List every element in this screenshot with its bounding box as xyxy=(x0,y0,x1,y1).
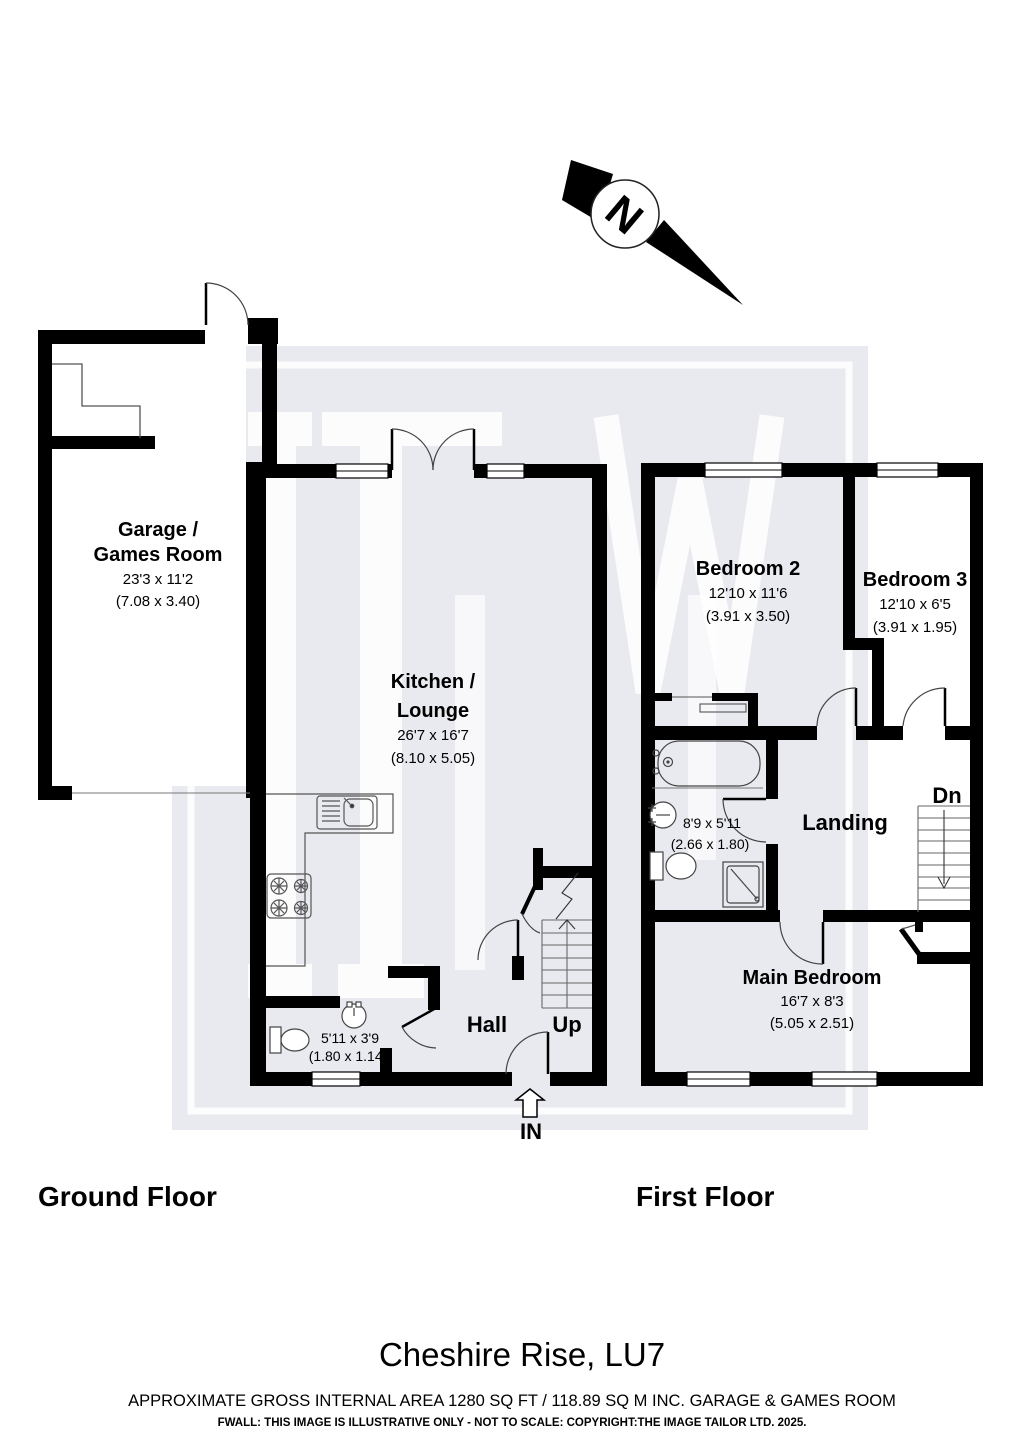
kitchen-label: Kitchen / xyxy=(391,671,476,693)
bedroom2-label: Bedroom 2 xyxy=(696,558,800,580)
window xyxy=(336,464,388,478)
main-bedroom-label: Main Bedroom xyxy=(743,967,882,989)
basin-icon xyxy=(648,802,676,828)
toilet-icon xyxy=(270,1027,309,1053)
north-arrow-icon: N xyxy=(562,160,743,305)
bathroom-dims-imperial: 8'9 x 5'11 xyxy=(683,815,741,831)
garage-dims-imperial: 23'3 x 11'2 xyxy=(123,571,194,588)
garage-label: Garage / xyxy=(118,519,198,541)
disclaimer: FWALL: THIS IMAGE IS ILLUSTRATIVE ONLY -… xyxy=(218,1417,807,1429)
area-summary: APPROXIMATE GROSS INTERNAL AREA 1280 SQ … xyxy=(128,1392,896,1410)
bedroom3-dims-metric: (3.91 x 1.95) xyxy=(873,619,957,636)
main-bedroom-dims-imperial: 16'7 x 8'3 xyxy=(780,993,843,1010)
kitchen-dims-metric: (8.10 x 5.05) xyxy=(391,750,475,767)
first-floor-title: First Floor xyxy=(636,1181,775,1212)
bedroom2-dims-metric: (3.91 x 3.50) xyxy=(706,608,790,625)
landing-label: Landing xyxy=(802,810,888,835)
in-label: IN xyxy=(520,1119,542,1144)
floorplan-canvas: N xyxy=(0,0,1024,1447)
kitchen-label-2: Lounge xyxy=(397,700,469,722)
stairs-down xyxy=(918,806,970,912)
window xyxy=(705,463,782,477)
hall-label: Hall xyxy=(467,1012,507,1037)
door-arc xyxy=(206,283,248,325)
window xyxy=(487,464,524,478)
dn-label: Dn xyxy=(932,783,961,808)
window xyxy=(877,463,938,477)
window xyxy=(312,1072,360,1086)
ground-floor-title: Ground Floor xyxy=(38,1181,217,1212)
garage-label-2: Games Room xyxy=(94,544,223,566)
window xyxy=(687,1072,750,1086)
bedroom2-dims-imperial: 12'10 x 11'6 xyxy=(709,585,788,602)
up-label: Up xyxy=(552,1012,581,1037)
floorplan-page: N xyxy=(0,0,1024,1447)
garage-dims-metric: (7.08 x 3.40) xyxy=(116,593,200,610)
kitchen-dims-imperial: 26'7 x 16'7 xyxy=(397,727,469,744)
window xyxy=(812,1072,877,1086)
address-title: Cheshire Rise, LU7 xyxy=(379,1336,665,1373)
bedroom3-dims-imperial: 12'10 x 6'5 xyxy=(879,596,951,613)
bathroom-dims-metric: (2.66 x 1.80) xyxy=(671,836,750,852)
wc-dims-imperial: 5'11 x 3'9 xyxy=(321,1030,379,1046)
main-bedroom-dims-metric: (5.05 x 2.51) xyxy=(770,1015,854,1032)
toilet-icon xyxy=(650,852,696,880)
wc-dims-metric: (1.80 x 1.14) xyxy=(309,1048,388,1064)
door-arc xyxy=(903,688,945,726)
bedroom3-label: Bedroom 3 xyxy=(863,569,967,591)
